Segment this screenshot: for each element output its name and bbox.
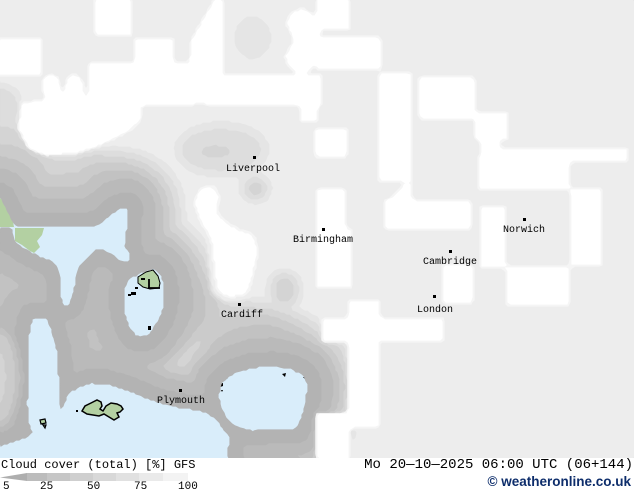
svg-text:Plymouth: Plymouth [157,395,205,407]
svg-text:Cambridge: Cambridge [423,256,477,268]
svg-text:Cardiff: Cardiff [221,309,263,321]
svg-text:Birmingham: Birmingham [293,234,353,246]
svg-text:Norwich: Norwich [503,224,545,236]
svg-text:London: London [417,304,453,316]
svg-text:Liverpool: Liverpool [226,163,280,175]
